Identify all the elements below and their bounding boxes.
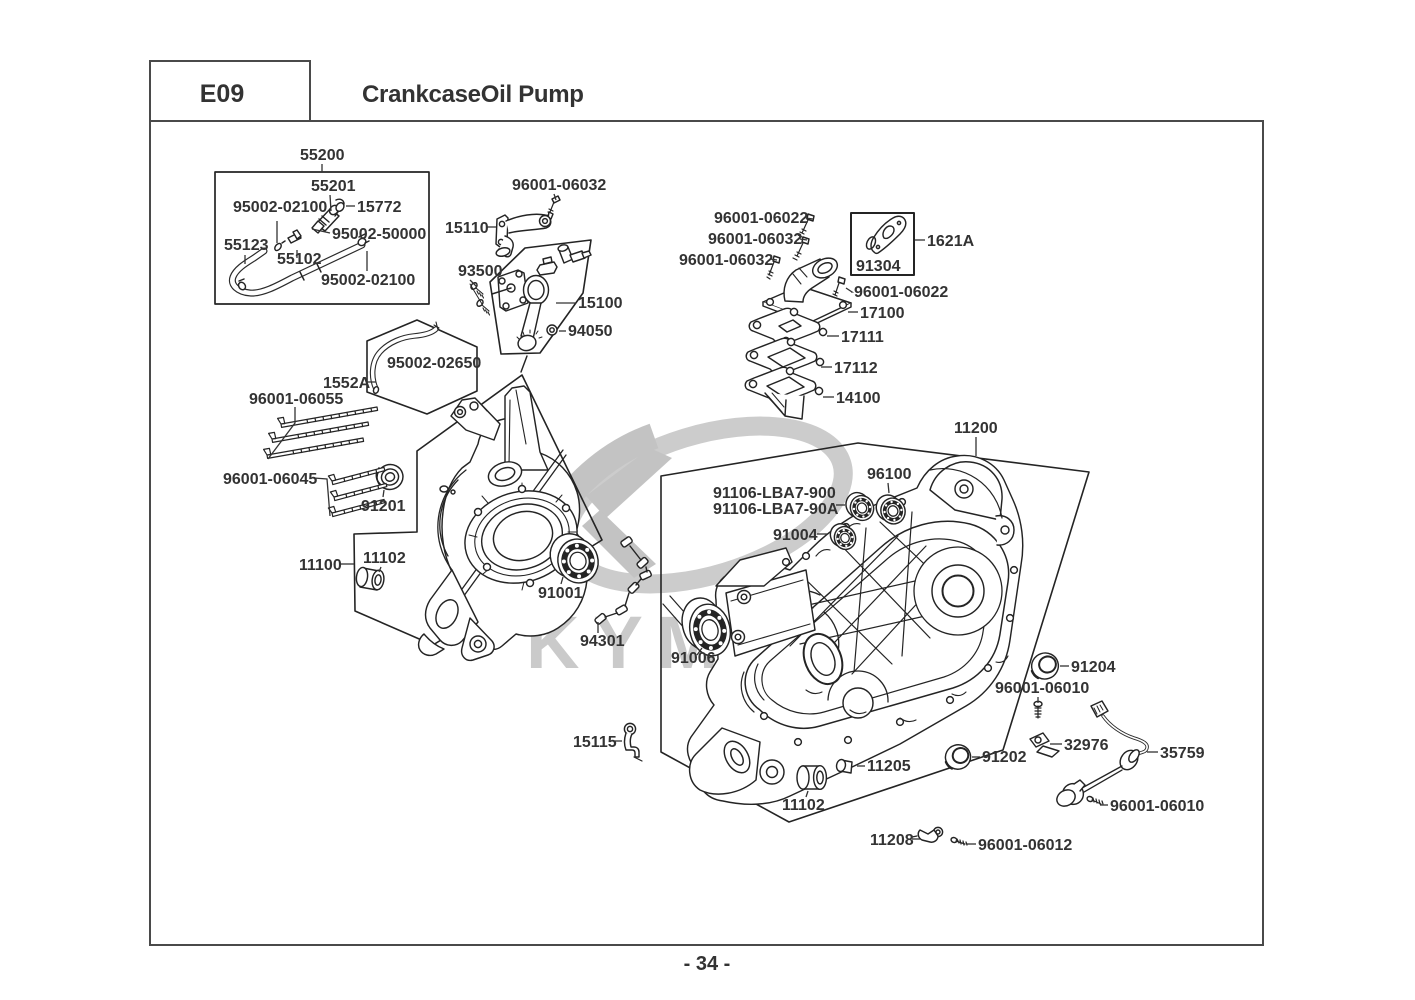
svg-text:91202: 91202 xyxy=(982,749,1027,766)
svg-text:96100: 96100 xyxy=(867,466,912,483)
svg-text:- 34 -: - 34 - xyxy=(684,953,731,975)
svg-text:96001-06032: 96001-06032 xyxy=(512,177,606,194)
svg-text:15100: 15100 xyxy=(578,295,623,312)
svg-text:91204: 91204 xyxy=(1071,659,1116,676)
svg-text:91106-LBA7-90A: 91106-LBA7-90A xyxy=(713,501,839,518)
svg-text:91006: 91006 xyxy=(671,650,716,667)
svg-text:95002-50000: 95002-50000 xyxy=(332,226,426,243)
svg-text:96001-06032: 96001-06032 xyxy=(679,252,773,269)
svg-text:1621A: 1621A xyxy=(927,233,975,250)
svg-text:91201: 91201 xyxy=(361,498,406,515)
svg-text:35759: 35759 xyxy=(1160,745,1205,762)
svg-text:96001-06022: 96001-06022 xyxy=(714,210,808,227)
svg-text:91004: 91004 xyxy=(773,527,818,544)
svg-text:91001: 91001 xyxy=(538,585,583,602)
svg-text:94301: 94301 xyxy=(580,633,625,650)
svg-text:15772: 15772 xyxy=(357,199,402,216)
svg-text:95002-02100: 95002-02100 xyxy=(233,199,327,216)
svg-text:11102: 11102 xyxy=(782,797,825,814)
svg-text:96001-06010: 96001-06010 xyxy=(1110,798,1204,815)
svg-text:96001-06012: 96001-06012 xyxy=(978,837,1072,854)
svg-text:96001-06032: 96001-06032 xyxy=(708,231,802,248)
svg-text:55201: 55201 xyxy=(311,178,356,195)
svg-text:17100: 17100 xyxy=(860,305,905,322)
svg-text:96001-06045: 96001-06045 xyxy=(223,471,317,488)
svg-text:17111: 17111 xyxy=(841,329,884,346)
svg-text:11100: 11100 xyxy=(299,557,342,574)
svg-text:14100: 14100 xyxy=(836,390,881,407)
svg-text:93500: 93500 xyxy=(458,263,503,280)
svg-text:94050: 94050 xyxy=(568,323,613,340)
svg-text:11102: 11102 xyxy=(363,550,406,567)
svg-text:96001-06055: 96001-06055 xyxy=(249,391,343,408)
svg-text:CrankcaseOil Pump: CrankcaseOil Pump xyxy=(362,81,584,108)
svg-text:E09: E09 xyxy=(200,80,244,108)
svg-text:17112: 17112 xyxy=(834,360,878,377)
svg-text:15115: 15115 xyxy=(573,734,617,751)
svg-text:11200: 11200 xyxy=(954,420,998,437)
svg-text:1552A: 1552A xyxy=(323,375,371,392)
svg-text:95002-02650: 95002-02650 xyxy=(387,355,481,372)
svg-text:91304: 91304 xyxy=(856,258,901,275)
svg-text:11208: 11208 xyxy=(870,832,914,849)
svg-text:96001-06010: 96001-06010 xyxy=(995,680,1089,697)
svg-text:55102: 55102 xyxy=(277,251,322,268)
svg-text:15110: 15110 xyxy=(445,220,489,237)
svg-text:11205: 11205 xyxy=(867,758,911,775)
svg-text:95002-02100: 95002-02100 xyxy=(321,272,415,289)
svg-text:96001-06022: 96001-06022 xyxy=(854,284,948,301)
svg-text:55200: 55200 xyxy=(300,147,345,164)
svg-text:32976: 32976 xyxy=(1064,737,1109,754)
svg-text:55123: 55123 xyxy=(224,237,269,254)
svg-text:91106-LBA7-900: 91106-LBA7-900 xyxy=(713,485,836,502)
